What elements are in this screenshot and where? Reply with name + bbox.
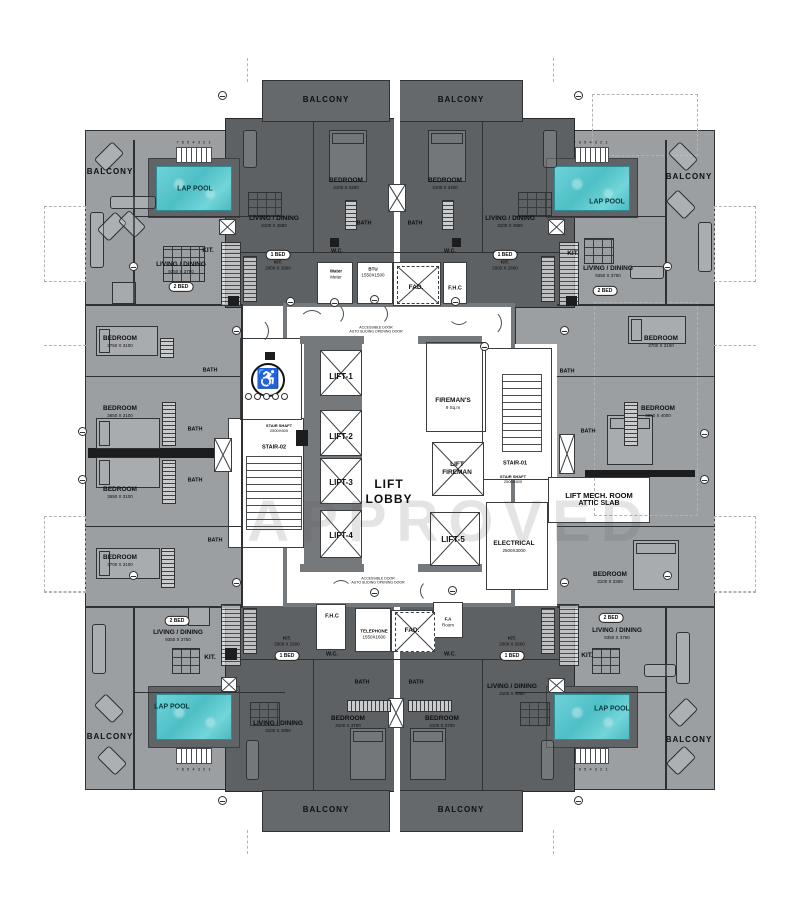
btu-room: BTU1550X1500 (361, 266, 384, 277)
balcony-corner-bl: BALCONY (87, 732, 134, 742)
balcony-corner-br: BALCONY (666, 735, 713, 745)
bath-l3: BATH (188, 478, 203, 485)
badge-top-left-unit: 1 BED (266, 250, 291, 260)
door-swing (243, 318, 269, 344)
bed (350, 728, 386, 780)
sofa (246, 740, 259, 780)
core-wall (300, 336, 364, 344)
door-swing (448, 303, 470, 325)
lap-pool-br-water (554, 694, 630, 740)
grid-bubble-icon (448, 586, 457, 595)
wall-line (557, 606, 715, 608)
setback-dashed-line (714, 345, 756, 346)
grid-bubble-icon (700, 429, 709, 438)
setback-dashed-line (44, 592, 86, 593)
grid-bubble-icon (663, 262, 672, 271)
balcony-bottom-right: BALCONY (438, 805, 485, 815)
sofa (543, 130, 557, 168)
balcony-top-left: BALCONY (303, 95, 350, 105)
bath-bottom-right: BATH (409, 680, 424, 687)
step-treads (176, 147, 212, 163)
lap-pool-tr: LAP POOL (589, 199, 625, 208)
firemans-lobby: FIREMAN'S9 Sq.m (435, 397, 471, 411)
living-dining-bl: LIVING / DINING9350 X 3750 (153, 629, 203, 643)
kitchen-counter (541, 608, 555, 654)
accessible-door-bottom: ACCESSIBLE DOORAUTO SLIDING OPENING DOOR (351, 577, 404, 586)
lift-4: LIFT-4 (329, 531, 353, 541)
fhc-bottom: F.H.C (325, 614, 339, 621)
grid-bubble-icon (574, 91, 583, 100)
wc-top-left: W.C. (331, 249, 343, 256)
fhc-top: F.H.C (448, 286, 462, 293)
wardrobe (345, 200, 357, 230)
bath-r2: BATH (581, 429, 596, 436)
living-dining-bottom-right: LIVING / DINING3100 X 4850 (487, 683, 537, 697)
wardrobe (161, 548, 175, 588)
setback-dashed-box (714, 516, 756, 592)
wardrobe (162, 460, 176, 504)
setback-dashed-line (247, 58, 248, 82)
grid-bubble-icon (129, 262, 138, 271)
stair-shaft-right: STAIR SHAFT2500X600 (500, 474, 526, 484)
door-swing (299, 310, 325, 336)
bath-top-left: BATH (357, 221, 372, 228)
grid-bubble-icon (232, 326, 241, 335)
badge-bl: 2 BED (165, 616, 190, 626)
grid-bubble-icon (129, 571, 138, 580)
wheelchair-icon: ♿ (256, 368, 280, 392)
stair-01: STAIR-01 (503, 461, 527, 468)
wc-bottom-left: W.C. (326, 652, 338, 659)
living-dining-tl: LIVING / DINING9350 X 3750 (156, 261, 206, 275)
balcony-bottom-left: BALCONY (303, 805, 350, 815)
shaft-x-box (548, 219, 565, 235)
fad-top: FAD. (409, 284, 424, 292)
stair-shaft-left: STAIR SHAFT2500X600 (266, 423, 292, 433)
grid-bubble-icon (286, 297, 295, 306)
grid-bubble-icon (451, 297, 460, 306)
fa-room: F.ARoom (442, 616, 454, 627)
solid-fixture (228, 296, 239, 306)
shaft-x-box (548, 678, 565, 693)
grid-bubble-icon (78, 475, 87, 484)
lift-fireman: LIFTFIREMAN (442, 461, 472, 477)
setback-dashed-box (714, 206, 756, 282)
kitchen-counter (243, 608, 257, 654)
meter-icon (263, 393, 270, 400)
sofa (698, 222, 712, 272)
solid-fixture (265, 352, 275, 360)
bed (428, 130, 466, 182)
step-treads (575, 748, 609, 764)
sofa (644, 664, 676, 677)
shaft-x-box (214, 438, 232, 472)
badge-bottom-right-unit: 1 BED (500, 651, 525, 661)
setback-dashed-box (44, 516, 86, 592)
kitchen-bl: KIT. (204, 654, 216, 662)
step-treads (176, 748, 212, 764)
meter-icon (272, 393, 279, 400)
solid-fixture (296, 430, 308, 446)
sofa (630, 266, 664, 279)
steps-count-bl: 7 6 5 4 3 2 1 (176, 767, 211, 772)
balcony-top-right: BALCONY (438, 95, 485, 105)
shaft-x-box (219, 219, 236, 235)
kitchen-tl: KIT. (202, 247, 214, 255)
solid-fixture (585, 470, 695, 477)
bath-bottom-left: BATH (355, 680, 370, 687)
wall-line (133, 608, 135, 790)
grid-bubble-icon (78, 427, 87, 436)
sofa (541, 740, 554, 780)
table (112, 282, 136, 304)
wall-line (515, 692, 666, 693)
wall-line (85, 606, 243, 608)
floor-plan-canvas: BALCONYBALCONYBALCONYBALCONYBALCONYBALCO… (0, 0, 800, 912)
bath-top-right: BATH (408, 221, 423, 228)
bedroom-bottom-right: BEDROOM3100 X 3700 (425, 715, 459, 729)
grid-bubble-icon (330, 298, 339, 307)
grid-bubble-icon (700, 475, 709, 484)
wardrobe (624, 402, 638, 446)
wall-line (313, 659, 314, 790)
grid-bubble-icon (663, 571, 672, 580)
dining-set (592, 648, 620, 674)
kitchen-br: KIT. (581, 652, 593, 660)
bed (410, 728, 446, 780)
bedroom-top-right: BEDROOM3100 X 3400 (428, 177, 462, 191)
balcony-corner-tl: BALCONY (87, 167, 134, 177)
wall-line (85, 304, 243, 306)
sofa (243, 130, 257, 168)
electrical: ELECTRICAL2500X3000 (493, 540, 534, 554)
dining-set (172, 648, 200, 674)
living-dining-tr: LIVING / DINING9350 X 3750 (583, 265, 633, 279)
bath-l2: BATH (188, 427, 203, 434)
wall-line (482, 122, 483, 253)
lift-mech-room: LIFT MECH. ROOMATTIC SLAB (565, 491, 633, 509)
stair-treads (502, 374, 542, 452)
living-dining-bottom-left: LIVING / DINING3100 X 4850 (253, 720, 303, 734)
bath-r1: BATH (560, 369, 575, 376)
solid-fixture (452, 238, 461, 247)
wardrobe (160, 338, 174, 358)
dining-set (520, 702, 550, 726)
bedroom-r2: BEDROOM3850 X 4000 (641, 405, 675, 419)
meter-icon (245, 393, 252, 400)
grid-bubble-icon (574, 796, 583, 805)
bed (96, 418, 160, 449)
bed (96, 457, 160, 488)
door-swing (366, 303, 388, 325)
step-treads (575, 147, 609, 163)
door-swing (330, 580, 352, 602)
balcony-corner-tr: BALCONY (666, 172, 713, 182)
wall-line (85, 526, 243, 527)
kit-bottom-left: KIT.2000 X 2600 (274, 635, 300, 646)
wc-top-right: W.C. (444, 249, 456, 256)
shaft-x-box (221, 677, 237, 692)
bedroom-l3: BEDROOM3650 X 3100 (103, 486, 137, 500)
bedroom-l1: BEDROOM3750 X 3100 (103, 335, 137, 349)
kitchen-counter (243, 256, 257, 302)
wall-line (665, 140, 667, 304)
living-dining-br: LIVING / DINING9350 X 3750 (592, 627, 642, 641)
table (188, 606, 210, 626)
wall-line (482, 659, 483, 790)
wall-line (85, 376, 243, 377)
meter-icon (281, 393, 288, 400)
badge-br: 2 BED (599, 613, 624, 623)
lift-lobby: LIFTLOBBY (366, 477, 413, 507)
water-meter: WaterMeter (330, 268, 342, 279)
grid-bubble-icon (232, 578, 241, 587)
accessible-door-top: ACCESSIBLE DOORAUTO SLIDING OPENING DOOR (349, 326, 402, 335)
solid-fixture (330, 238, 339, 247)
kit-top-left: KIT.2000 X 2600 (265, 259, 291, 270)
bedroom-r1: BEDROOM3700 X 3100 (644, 335, 678, 349)
bedroom-l2: BEDROOM3650 X 3100 (103, 405, 137, 419)
meter-icon (254, 393, 261, 400)
room-outline (426, 342, 486, 432)
sofa (92, 624, 106, 674)
grid-bubble-icon (370, 588, 379, 597)
bath-l1: BATH (203, 368, 218, 375)
lap-pool-bl-water (156, 694, 232, 740)
kitchen-counter (541, 256, 555, 302)
lift-2: LIFT-2 (329, 432, 353, 442)
lap-pool-bl: LAP POOL (154, 704, 190, 713)
living-dining-top-right: LIVING / DINING3100 X 4850 (485, 215, 535, 229)
kitchen-counter (559, 604, 579, 666)
wardrobe (347, 700, 391, 712)
door-swing (476, 310, 502, 336)
lap-pool-br: LAP POOL (594, 706, 630, 715)
wardrobe (408, 700, 452, 712)
setback-dashed-box (44, 206, 86, 282)
setback-dashed-line (553, 58, 554, 82)
grid-bubble-icon (480, 342, 489, 351)
wardrobe (162, 402, 176, 446)
sofa (676, 632, 690, 684)
fad-bottom: FAD. (405, 627, 420, 635)
dining-set (518, 192, 552, 216)
shaft-x-box (559, 434, 575, 474)
telephone: TELEPHONE1550X1600 (360, 628, 388, 639)
fhc-room-bottom (316, 604, 346, 650)
badge-top-right-unit: 1 BED (493, 250, 518, 260)
bed (329, 130, 367, 182)
bedroom-top-left: BEDROOM3100 X 3400 (329, 177, 363, 191)
wall-line (515, 216, 666, 217)
bedroom-l4: BEDROOM3700 X 3100 (103, 554, 137, 568)
badge-tr: 2 BED (593, 286, 618, 296)
solid-fixture (566, 296, 577, 306)
kit-bottom-right: KIT.2000 X 2600 (499, 635, 525, 646)
steps-count-br: 7 6 5 4 3 2 1 (573, 767, 608, 772)
shaft-x-box (388, 184, 406, 212)
badge-tl: 2 BED (169, 282, 194, 292)
setback-dashed-line (553, 830, 554, 854)
kitchen-tr: KIT. (567, 250, 579, 258)
badge-bottom-left-unit: 1 BED (275, 651, 300, 661)
bedroom-r3: BEDROOM3100 X 3300 (593, 571, 627, 585)
sofa (90, 212, 104, 268)
wall-line (133, 692, 285, 693)
grid-bubble-icon (218, 796, 227, 805)
setback-dashed-line (247, 830, 248, 854)
steps-count-tl: 7 6 5 4 3 2 1 (176, 140, 211, 145)
bedroom-bottom-left: BEDROOM3100 X 3700 (331, 715, 365, 729)
grid-bubble-icon (560, 578, 569, 587)
lift-5: LIFT-5 (441, 535, 465, 545)
lift-1: LIFT-1 (329, 372, 353, 382)
grid-bubble-icon (218, 91, 227, 100)
lap-pool-tl: LAP POOL (177, 186, 213, 195)
setback-dashed-line (714, 592, 756, 593)
grid-bubble-icon (560, 326, 569, 335)
wall-line (241, 306, 243, 606)
kit-top-right: KIT.2000 X 2600 (492, 259, 518, 270)
living-dining-top-left: LIVING / DINING3100 X 4850 (249, 215, 299, 229)
wall-line (313, 122, 314, 253)
dining-set (248, 192, 282, 216)
bath-l4: BATH (208, 538, 223, 545)
sofa (110, 196, 156, 209)
wardrobe (442, 200, 454, 230)
wc-bottom-right: W.C. (444, 652, 456, 659)
wall-line (557, 304, 715, 306)
setback-dashed-line (44, 345, 86, 346)
lift-3: LIFT-3 (329, 478, 353, 488)
stair-02: STAIR-02 (262, 445, 286, 452)
wall-line (557, 376, 715, 377)
door-swing (420, 580, 442, 602)
steps-count-tr: 7 6 5 4 3 2 1 (573, 140, 608, 145)
grid-bubble-icon (370, 295, 379, 304)
dining-set (584, 238, 614, 264)
solid-fixture (225, 648, 237, 660)
